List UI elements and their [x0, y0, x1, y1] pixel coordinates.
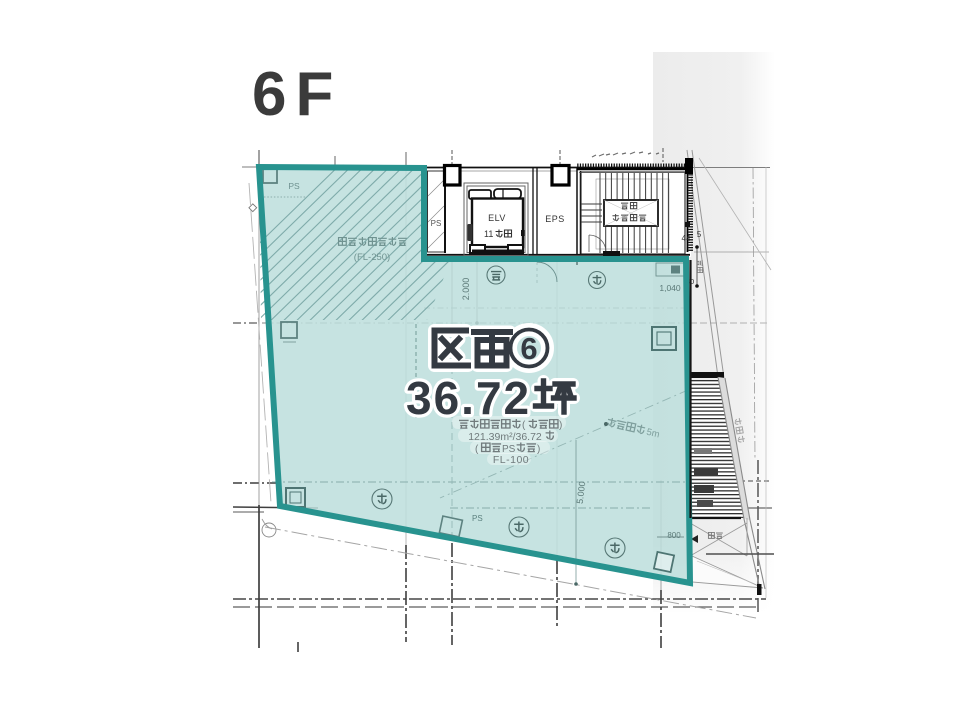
svg-text:2.000: 2.000	[461, 278, 471, 301]
svg-text:EPS: EPS	[545, 214, 565, 224]
svg-text:ELV: ELV	[488, 213, 506, 223]
svg-text:FL-100: FL-100	[493, 454, 529, 466]
svg-text:11: 11	[484, 229, 493, 239]
svg-text:44: 44	[682, 234, 691, 243]
svg-text:1,040: 1,040	[659, 283, 681, 293]
svg-text:): )	[559, 420, 562, 431]
svg-text:5: 5	[697, 230, 702, 239]
svg-text:(FL-250): (FL-250)	[354, 252, 390, 263]
svg-text:121.39m²/36.72: 121.39m²/36.72	[468, 431, 542, 443]
svg-text:): )	[537, 444, 540, 455]
svg-text:6F: 6F	[252, 60, 342, 129]
svg-text:PS: PS	[472, 514, 483, 523]
svg-text:PS: PS	[431, 219, 442, 228]
svg-text:6: 6	[520, 331, 537, 366]
svg-text:PS: PS	[288, 181, 300, 191]
svg-text:800: 800	[667, 531, 681, 540]
